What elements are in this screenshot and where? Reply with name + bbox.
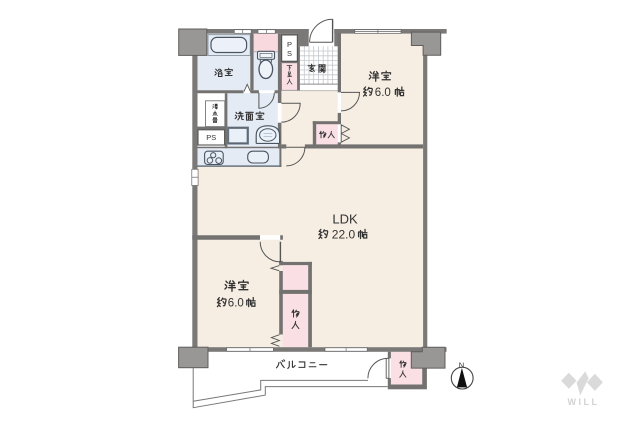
svg-text:LDK: LDK (332, 212, 358, 227)
svg-text:WILL: WILL (568, 397, 600, 407)
svg-text:PS: PS (206, 133, 216, 142)
svg-text:N: N (459, 361, 464, 370)
svg-text:6.0: 6.0 (375, 87, 391, 99)
svg-text:6.0: 6.0 (228, 297, 244, 309)
svg-text:P: P (287, 40, 292, 49)
svg-text:22.0: 22.0 (332, 228, 356, 242)
svg-text:S: S (287, 49, 292, 58)
